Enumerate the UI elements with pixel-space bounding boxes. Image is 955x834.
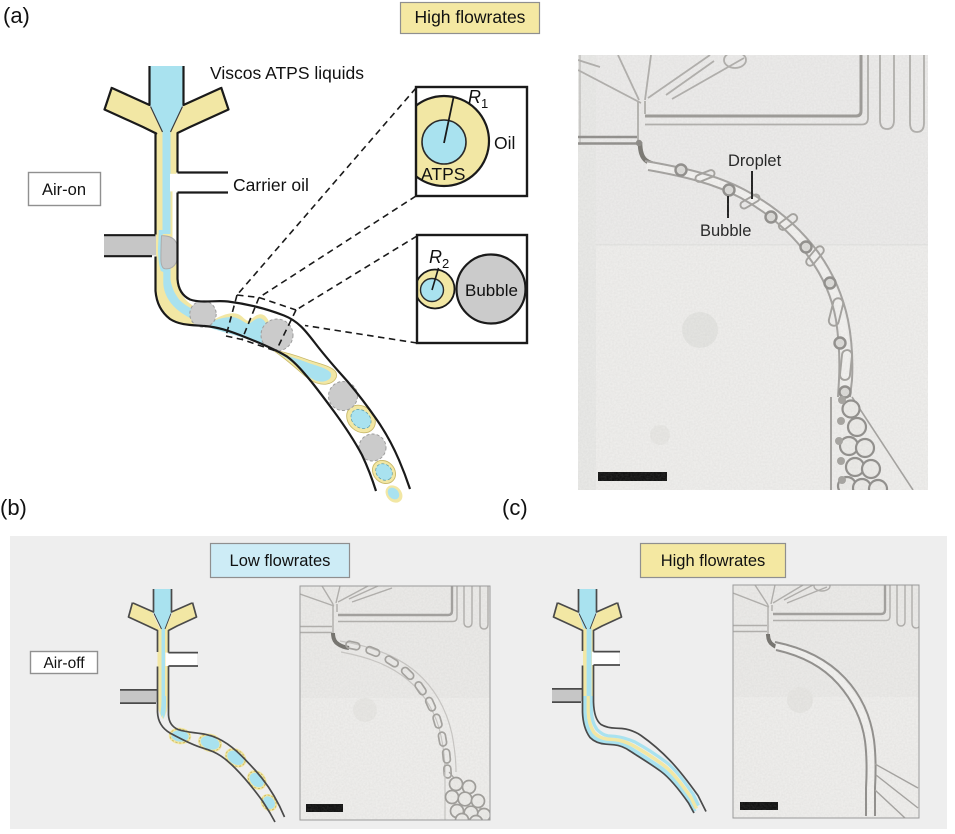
svg-text:Oil: Oil [494, 133, 515, 153]
svg-text:Air-off: Air-off [43, 655, 85, 672]
svg-text:R: R [429, 247, 442, 267]
svg-text:Bubble: Bubble [465, 281, 518, 300]
svg-text:ATPS: ATPS [421, 164, 465, 184]
svg-text:High flowrates: High flowrates [661, 552, 766, 570]
svg-text:2: 2 [442, 256, 449, 271]
svg-text:Carrier oil: Carrier oil [233, 175, 309, 195]
svg-text:(b): (b) [0, 495, 27, 520]
svg-text:(c): (c) [502, 495, 528, 520]
svg-text:Viscos ATPS liquids: Viscos ATPS liquids [210, 63, 364, 83]
svg-text:1: 1 [481, 96, 488, 111]
svg-text:High flowrates: High flowrates [415, 7, 526, 27]
svg-text:(a): (a) [3, 3, 30, 28]
svg-text:Air-on: Air-on [42, 181, 86, 199]
svg-text:R: R [468, 87, 481, 107]
svg-text:Low flowrates: Low flowrates [230, 552, 331, 570]
